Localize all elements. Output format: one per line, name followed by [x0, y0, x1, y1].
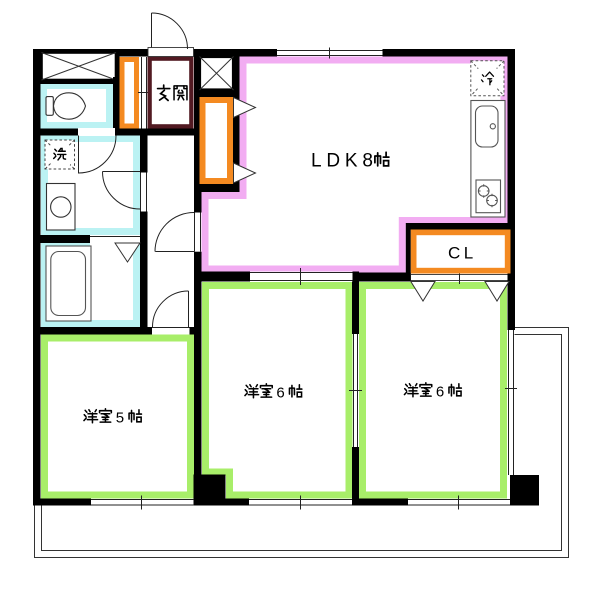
- svg-text:6: 6: [276, 385, 284, 402]
- svg-text:6: 6: [436, 384, 444, 401]
- svg-text:CL: CL: [448, 244, 477, 263]
- svg-text:5: 5: [116, 410, 124, 427]
